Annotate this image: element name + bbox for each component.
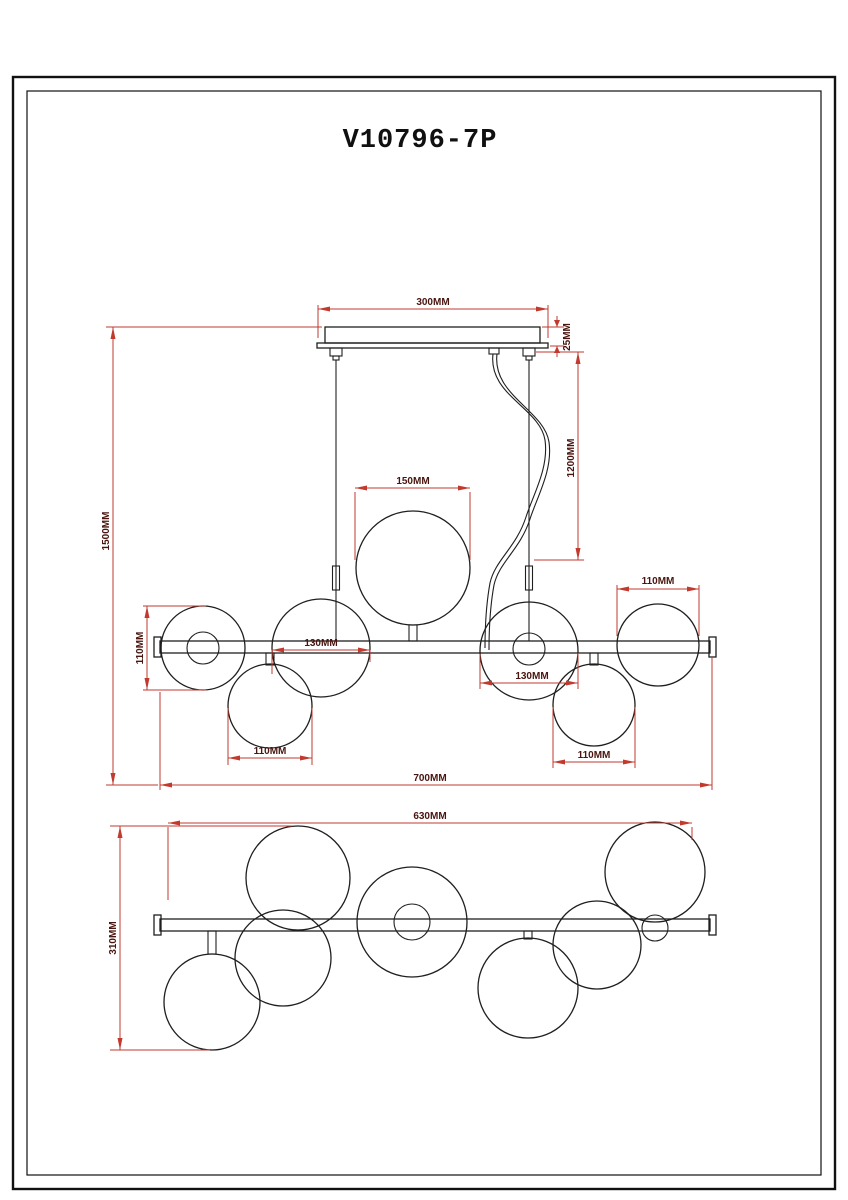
globes-front [161,511,699,748]
globe-stem-center [409,625,417,641]
dim-label: 700MM [413,773,446,784]
globe-plan-4 [357,867,467,977]
dim-label: 110MM [254,746,287,757]
power-cord-line-2 [489,354,550,650]
drawing-page: V10796-7P [0,0,848,1200]
dim-canopy-width: 300MM [318,297,548,338]
wire-hanger-right-neck [526,356,532,360]
cord-gland [489,348,499,354]
globe-stem-plan-left [208,931,216,954]
dim-label: 110MM [642,576,675,587]
bottom-view: 630MM 310MM [108,811,716,1050]
dim-label: 1200MM [566,439,577,478]
rod-bar [160,641,710,653]
dim-right-globe-width: 130MM [480,653,578,689]
globe-front-7 [553,664,635,746]
dim-label: 130MM [515,671,548,682]
dim-top-right-globe-width: 110MM [617,576,699,636]
rod-bar-plan [160,919,710,931]
globe-plan-3 [164,954,260,1050]
dim-label: 1500MM [101,512,112,551]
wire-hanger-left [330,348,342,356]
technical-drawing: V10796-7P [0,0,848,1200]
globe-front-6 [617,604,699,686]
rod-assembly-plan [154,915,716,954]
front-view: 300MM 25MM 1200MM 1500MM [101,297,716,790]
globe-front-1-ring [187,632,219,664]
dim-label: 150MM [396,476,429,487]
dim-label: 630MM [413,811,446,822]
drawing-title: V10796-7P [343,126,498,156]
front-dimensions: 300MM 25MM 1200MM 1500MM [101,297,712,790]
globe-plan-2 [235,910,331,1006]
dim-canopy-height: 25MM [542,316,573,357]
canopy-body [325,327,540,343]
dim-bottom-right-globe-width: 110MM [553,707,635,768]
dim-left-globe-height: 110MM [135,606,206,690]
dim-overall-depth: 310MM [108,826,292,1050]
globe-front-3 [228,664,312,748]
globe-plan-4-ring [394,904,430,940]
dim-label: 25MM [562,323,573,351]
suspension [333,354,550,650]
wire-hanger-right [523,348,535,356]
globe-plan-7 [605,822,705,922]
dim-label: 310MM [108,921,119,954]
globes-plan [164,822,705,1050]
dim-label: 130MM [304,638,337,649]
dim-label: 110MM [135,632,146,665]
globe-plan-6 [478,938,578,1038]
wire-hanger-left-neck [333,356,339,360]
dim-center-globe-width: 150MM [355,476,470,560]
dim-left-globe-width: 130MM [272,638,370,674]
page-border-inner [27,91,821,1175]
globe-stem-bottom-right [590,653,598,665]
dim-overall-height: 1500MM [101,327,322,785]
globe-front-1 [161,606,245,690]
globe-front-4 [356,511,470,625]
dim-label: 300MM [416,297,449,308]
canopy-flange [317,343,548,348]
rod-assembly [154,625,716,665]
canopy [317,327,548,360]
dim-suspension-length: 1200MM [534,352,584,560]
dim-overall-width: 700MM [160,657,712,790]
dim-label: 110MM [578,750,611,761]
